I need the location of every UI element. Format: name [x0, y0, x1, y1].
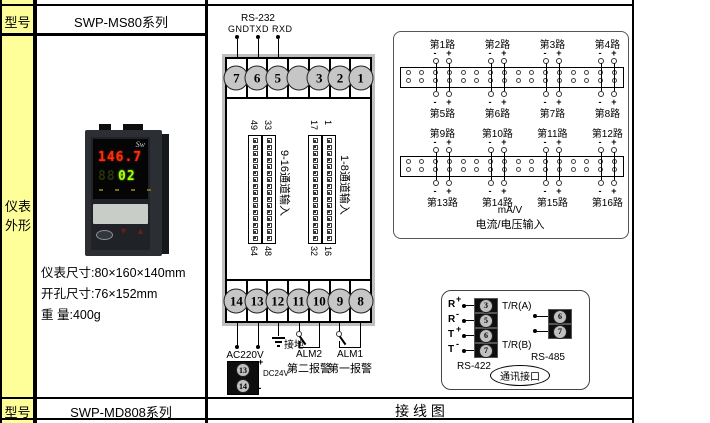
pin — [253, 190, 258, 195]
pin — [327, 164, 332, 169]
strip-corner-number: 33 — [263, 120, 273, 130]
pin — [267, 203, 272, 208]
pin — [313, 203, 318, 208]
dc-terminal-13: 13 — [236, 363, 250, 377]
top-terminal-row: 765321 — [227, 59, 370, 99]
minus-sign: - — [434, 48, 437, 58]
pin-column — [248, 135, 262, 244]
wire — [601, 152, 602, 180]
wire — [491, 63, 492, 91]
wire — [465, 305, 474, 306]
grid-line — [33, 0, 37, 423]
pin — [253, 158, 258, 163]
wire — [614, 152, 615, 180]
pin — [327, 210, 332, 215]
pin — [253, 151, 258, 156]
wire — [299, 347, 319, 348]
pin — [267, 171, 272, 176]
minus-sign: - — [544, 48, 547, 58]
strip-terminal — [461, 167, 466, 172]
grid-line — [0, 397, 634, 399]
pin — [253, 184, 258, 189]
model-label-top: 型号 — [2, 12, 33, 31]
wire — [614, 63, 615, 91]
strip-terminal — [516, 70, 521, 75]
device-display: Sw 146.7 88 02 — [93, 139, 148, 199]
pin — [327, 216, 332, 221]
pin — [327, 203, 332, 208]
wire — [299, 323, 300, 331]
pin — [313, 236, 318, 241]
rs422-terminal-cell: 7 — [474, 343, 498, 358]
pin — [267, 223, 272, 228]
tra-label: T/R(A) — [502, 301, 531, 312]
wire — [278, 39, 279, 57]
current-voltage-caption: 电流/电压输入 — [460, 216, 560, 232]
wire — [536, 316, 548, 317]
pin — [253, 177, 258, 182]
rs232-title: RS-232 — [230, 13, 286, 24]
set-button — [96, 230, 113, 240]
alm2-label: ALM2 — [289, 349, 329, 360]
pin — [267, 190, 272, 195]
indicator-lamp — [115, 189, 119, 191]
rs422-terminal-cell: 5 — [474, 313, 498, 328]
signal-label: T — [448, 329, 454, 340]
strip-terminal — [571, 167, 576, 172]
alm1-sub-label: 第一报警 — [324, 360, 376, 376]
strip-terminal — [461, 78, 466, 83]
wire — [258, 39, 259, 57]
sv-display: 02 — [118, 169, 136, 184]
plus-sign: + — [556, 137, 561, 147]
rs422-terminal-7: 7 — [479, 344, 493, 358]
rs485-terminal-7: 7 — [553, 325, 567, 339]
label-panel — [93, 204, 148, 224]
brand-logo: Sw — [136, 140, 145, 149]
comm-port-badge: 通讯接口 — [490, 365, 550, 386]
strip-corner-number: 16 — [323, 246, 333, 256]
rs422-terminal-cell: 6 — [474, 328, 498, 343]
connector-strip — [248, 135, 276, 244]
pin — [327, 197, 332, 202]
pin — [267, 184, 272, 189]
channel-label: 第6路 — [475, 105, 519, 120]
pin — [313, 177, 318, 182]
strip-corner-number: 49 — [249, 120, 259, 130]
pin — [327, 171, 332, 176]
rs232-pin-names: GNDTXD RXD — [228, 24, 293, 34]
strip-corner-number: 17 — [309, 120, 319, 130]
instrument-photo: Sw 146.7 88 02 ▼ ▲ — [73, 122, 177, 262]
wire — [449, 152, 450, 180]
signal-label: R — [448, 314, 455, 325]
pin — [327, 184, 332, 189]
wire — [536, 331, 548, 332]
signal-label: R — [448, 299, 455, 310]
pv-display: 146.7 — [98, 150, 142, 165]
strip-terminal — [406, 70, 411, 75]
strip-terminal — [571, 70, 576, 75]
outline-label-line2: 外形 — [3, 215, 33, 234]
pin — [253, 164, 258, 169]
wire — [465, 350, 474, 351]
channel-label: 第4路 — [585, 36, 629, 51]
pin-column — [262, 135, 276, 244]
minus-sign: - — [599, 137, 602, 147]
pin — [313, 216, 318, 221]
connector-strip — [308, 135, 336, 244]
grid-line — [632, 0, 634, 423]
pin — [313, 229, 318, 234]
contact-blade — [339, 336, 346, 345]
pin — [313, 151, 318, 156]
indicator-lamp — [131, 189, 135, 191]
lead-dot — [235, 345, 239, 349]
pin — [253, 229, 258, 234]
strip-terminal — [406, 167, 411, 172]
channel-label: 第5路 — [420, 105, 464, 120]
strip-terminal — [571, 159, 576, 164]
pin — [253, 216, 258, 221]
plus-sign: + — [611, 48, 616, 58]
pin — [313, 171, 318, 176]
minus-sign: - — [544, 137, 547, 147]
strip-terminal — [461, 70, 466, 75]
pin — [313, 164, 318, 169]
strip-channel-label: 1-8通道输入 — [337, 155, 353, 215]
pin — [267, 138, 272, 143]
pin — [267, 158, 272, 163]
rs485-terminal-cell: 7 — [548, 324, 572, 339]
terminal-1: 1 — [348, 66, 373, 91]
rs422-terminal-cell: 3 — [474, 298, 498, 313]
signal-sign: - — [456, 309, 459, 319]
strip-terminal — [571, 78, 576, 83]
strip-terminal — [516, 78, 521, 83]
wire — [360, 323, 361, 348]
down-button: ▼ — [119, 226, 128, 236]
device-size-text: 仪表尺寸:80×160×140mm — [41, 262, 186, 281]
rs485-terminal-6: 6 — [553, 310, 567, 324]
wire — [258, 323, 259, 347]
outline-label-line1: 仪表 — [3, 196, 33, 215]
model-label-bottom: 型号 — [2, 402, 33, 421]
pin — [267, 177, 272, 182]
plus-sign: + — [501, 137, 506, 147]
pin — [327, 158, 332, 163]
wire — [237, 39, 238, 57]
model-value-bottom: SWP-MD808系列 — [37, 402, 205, 421]
channel-label: 第10路 — [475, 125, 519, 140]
channel-label: 第15路 — [530, 194, 574, 209]
indicator-lamp — [99, 189, 103, 191]
pin — [267, 210, 272, 215]
wire — [491, 152, 492, 180]
pin — [327, 190, 332, 195]
pin — [313, 184, 318, 189]
wire — [436, 63, 437, 91]
pin — [253, 236, 258, 241]
indicator-lamp — [147, 189, 151, 191]
pin — [327, 223, 332, 228]
pin — [327, 151, 332, 156]
rs422-terminal-stack: 3567 — [474, 298, 498, 358]
pin — [327, 229, 332, 234]
wire — [465, 320, 474, 321]
wire — [339, 347, 360, 348]
rs485-label: RS-485 — [522, 352, 574, 363]
strip-corner-number: 32 — [309, 246, 319, 256]
minus-sign: - — [599, 48, 602, 58]
rs485-terminal-stack: 67 — [548, 309, 572, 339]
wire — [559, 152, 560, 180]
pin — [253, 223, 258, 228]
ground-symbol — [277, 345, 280, 347]
strip-terminal — [406, 159, 411, 164]
terminal-8: 8 — [348, 289, 373, 314]
pin — [253, 171, 258, 176]
dc-terminal-14: 14 — [236, 379, 250, 393]
wire — [504, 63, 505, 91]
strip-terminal — [461, 159, 466, 164]
wire — [546, 152, 547, 180]
dc24v-terminal-box: 1314 — [227, 361, 259, 395]
strip-terminal — [516, 159, 521, 164]
alm1-label: ALM1 — [330, 349, 370, 360]
sv-display-ghost: 88 — [98, 169, 116, 184]
wire — [319, 323, 320, 348]
wiring-diagram-title: 接 线 图 — [208, 401, 632, 421]
pin — [267, 236, 272, 241]
pin — [267, 229, 272, 234]
wire — [436, 152, 437, 180]
dc24v-label: DC24V — [263, 369, 289, 378]
model-value-top: SWP-MS80系列 — [37, 12, 205, 31]
strip-corner-number: 1 — [323, 120, 333, 125]
catalog-page: 型号 SWP-MS80系列 仪表 外形 仪表尺寸:80×160×140mm 开孔… — [0, 0, 710, 423]
channel-label: 第12路 — [585, 125, 629, 140]
wire — [601, 63, 602, 91]
wire — [559, 63, 560, 91]
pin — [267, 216, 272, 221]
pin — [313, 223, 318, 228]
pin — [253, 145, 258, 150]
minus-sign: - — [489, 137, 492, 147]
plus-sign: + — [446, 137, 451, 147]
strip-corner-number: 48 — [263, 246, 273, 256]
wire — [546, 63, 547, 91]
pin — [327, 236, 332, 241]
ground-symbol — [275, 341, 282, 343]
terminal-cell-8: 8 — [351, 281, 370, 321]
strip-corner-number: 64 — [249, 246, 259, 256]
pin — [267, 164, 272, 169]
pin-column — [308, 135, 322, 244]
device-side — [161, 134, 169, 254]
weight-text: 重 量:400g — [41, 304, 101, 323]
plus-sign: + — [611, 137, 616, 147]
pin — [267, 145, 272, 150]
channel-label: 第9路 — [420, 125, 464, 140]
grid-line — [0, 4, 634, 6]
channel-label: 第1路 — [420, 36, 464, 51]
pin — [253, 138, 258, 143]
trb-label: T/R(B) — [502, 340, 531, 351]
pin — [327, 138, 332, 143]
pin — [313, 145, 318, 150]
rs422-terminal-3: 3 — [479, 299, 493, 313]
channel-label: 第13路 — [420, 194, 464, 209]
cutout-size-text: 开孔尺寸:76×152mm — [41, 283, 157, 302]
wire — [278, 323, 279, 336]
strip-channel-label: 9-16通道输入 — [277, 150, 293, 216]
rs422-terminal-6: 6 — [479, 329, 493, 343]
strip-terminal — [406, 78, 411, 83]
channel-label: 第16路 — [585, 194, 629, 209]
pin — [313, 158, 318, 163]
dc-terminal-cell: 13 — [228, 362, 258, 378]
channel-label: 第8路 — [585, 105, 629, 120]
grid-line — [0, 33, 208, 36]
pin — [313, 197, 318, 202]
pin — [313, 138, 318, 143]
signal-label: T — [448, 344, 454, 355]
ground-symbol — [272, 337, 285, 339]
channel-label: 第11路 — [530, 125, 574, 140]
pin — [267, 197, 272, 202]
plus-sign: + — [501, 48, 506, 58]
pin — [327, 177, 332, 182]
pin — [253, 210, 258, 215]
minus-sign: - — [434, 137, 437, 147]
channel-label: 第2路 — [475, 36, 519, 51]
wire — [465, 335, 474, 336]
lead-dot — [256, 345, 260, 349]
dc-terminal-cell: 14 — [228, 378, 258, 394]
signal-sign: + — [456, 294, 461, 304]
bottom-terminal-row: 141312111098 — [227, 279, 370, 321]
channel-label: 第3路 — [530, 36, 574, 51]
plus-sign: + — [446, 48, 451, 58]
terminal-cell-1: 1 — [351, 59, 370, 97]
rs422-terminal-5: 5 — [479, 314, 493, 328]
pin-column — [322, 135, 336, 244]
rs485-terminal-cell: 6 — [548, 309, 572, 324]
wire — [237, 323, 238, 347]
plus-sign: + — [556, 48, 561, 58]
channel-label: 第7路 — [530, 105, 574, 120]
grid-line — [205, 0, 208, 423]
signal-sign: + — [456, 324, 461, 334]
signal-sign: - — [456, 339, 459, 349]
pin — [327, 145, 332, 150]
pin — [253, 203, 258, 208]
strip-terminal — [516, 167, 521, 172]
minus-sign: - — [489, 48, 492, 58]
wire — [339, 323, 340, 331]
pin — [253, 197, 258, 202]
pin — [267, 151, 272, 156]
wire — [504, 152, 505, 180]
wire — [449, 63, 450, 91]
pin — [313, 210, 318, 215]
channel-label: 第14路 — [475, 194, 519, 209]
up-button: ▲ — [136, 226, 145, 236]
grid-line — [0, 0, 2, 423]
pin — [313, 190, 318, 195]
